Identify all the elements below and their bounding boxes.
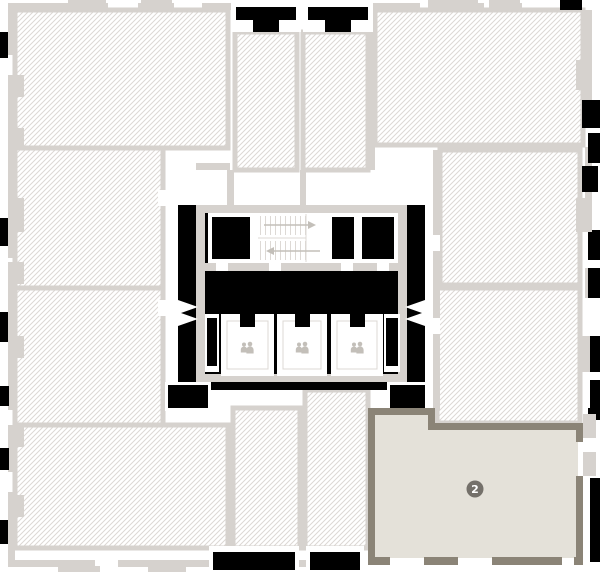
unit-bottom-center-2 bbox=[305, 390, 368, 548]
unit-left-lower bbox=[15, 288, 163, 425]
elevator-bank bbox=[205, 314, 400, 376]
unit-right-middle bbox=[440, 150, 580, 285]
unit-badge-number: 2 bbox=[471, 483, 479, 496]
elevator-3 bbox=[331, 314, 383, 376]
elevator-1 bbox=[221, 314, 274, 376]
core-room-2 bbox=[328, 213, 358, 263]
unit-top-center-2 bbox=[303, 32, 368, 170]
building-core bbox=[178, 205, 425, 390]
elevator-2 bbox=[277, 314, 327, 376]
unit-bottom-left bbox=[15, 425, 228, 548]
stairwell bbox=[254, 213, 328, 263]
balcony-door-jamb bbox=[583, 452, 596, 476]
balcony-recess-top-2 bbox=[303, 2, 373, 32]
unit-bottom-center-1 bbox=[233, 408, 300, 548]
unit-top-left bbox=[15, 10, 228, 148]
unit-top-center-1 bbox=[235, 32, 297, 170]
unit-top-right bbox=[375, 10, 583, 145]
unit-left-middle bbox=[15, 148, 163, 288]
floor-plan-svg: 2 bbox=[0, 0, 600, 572]
balcony-recess-top-1 bbox=[231, 2, 301, 32]
core-room-1 bbox=[208, 213, 254, 263]
unit-right-lower bbox=[437, 288, 580, 423]
unit-badge[interactable]: 2 bbox=[467, 481, 484, 498]
core-room-3 bbox=[358, 213, 398, 263]
balcony-door-jamb bbox=[583, 414, 596, 438]
floor-plan: 2 bbox=[0, 0, 600, 572]
